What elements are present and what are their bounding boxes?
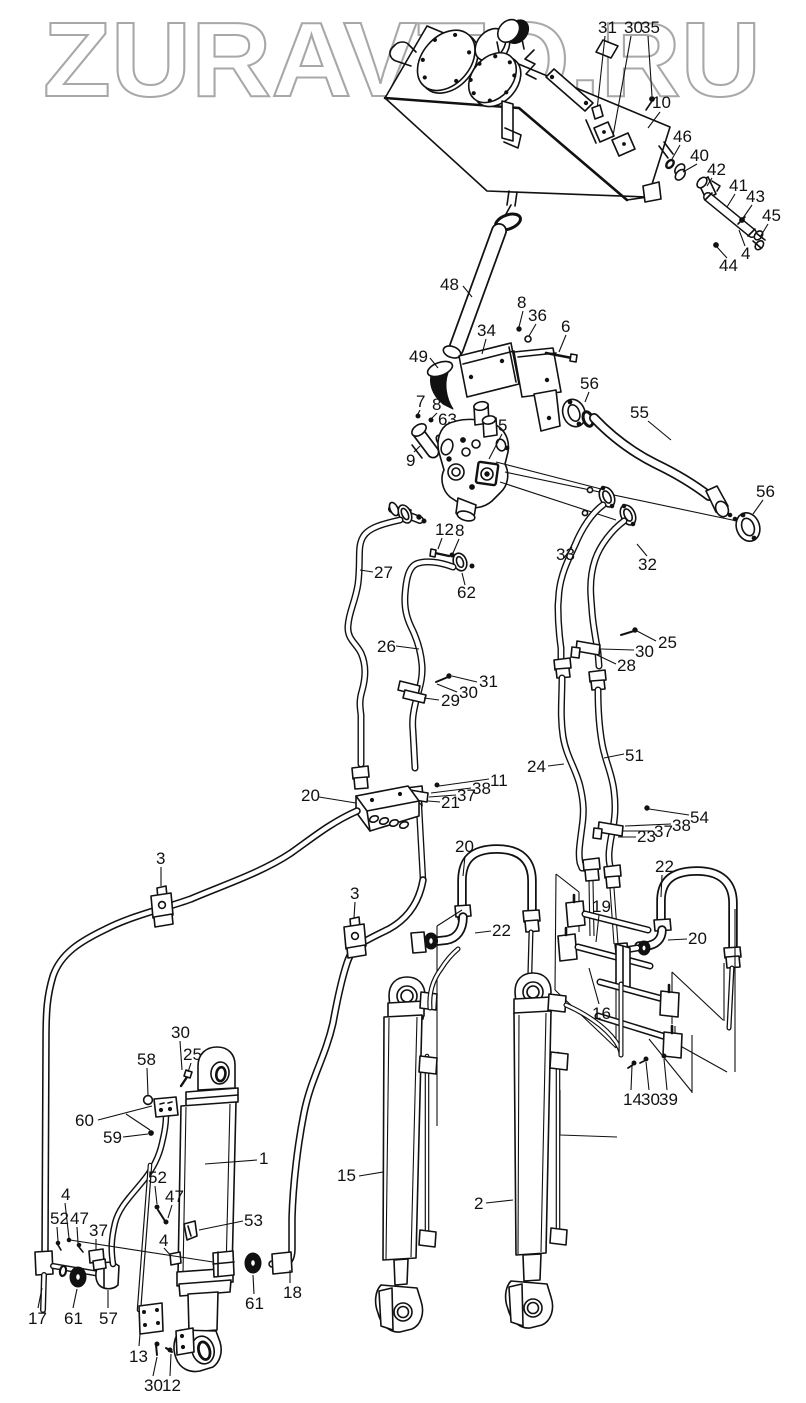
- svg-text:29: 29: [441, 691, 460, 710]
- svg-text:47: 47: [165, 1187, 184, 1206]
- svg-text:44: 44: [719, 256, 738, 275]
- svg-text:55: 55: [630, 403, 649, 422]
- svg-text:31: 31: [598, 18, 617, 37]
- svg-text:24: 24: [527, 757, 546, 776]
- svg-text:8: 8: [517, 293, 526, 312]
- svg-text:58: 58: [137, 1050, 156, 1069]
- svg-text:9: 9: [406, 451, 415, 470]
- svg-text:12: 12: [435, 520, 454, 539]
- svg-text:20: 20: [301, 786, 320, 805]
- svg-text:22: 22: [655, 857, 674, 876]
- svg-text:8: 8: [455, 521, 464, 540]
- svg-text:30: 30: [635, 642, 654, 661]
- svg-text:4: 4: [741, 244, 750, 263]
- svg-text:23: 23: [637, 827, 656, 846]
- svg-text:52: 52: [50, 1209, 69, 1228]
- svg-text:35: 35: [641, 18, 660, 37]
- svg-text:59: 59: [103, 1128, 122, 1147]
- svg-text:17: 17: [28, 1309, 47, 1328]
- svg-text:27: 27: [374, 563, 393, 582]
- svg-text:30: 30: [641, 1090, 660, 1109]
- svg-text:36: 36: [528, 306, 547, 325]
- svg-text:14: 14: [623, 1090, 642, 1109]
- svg-text:52: 52: [148, 1168, 167, 1187]
- svg-text:22: 22: [492, 921, 511, 940]
- svg-text:61: 61: [245, 1294, 264, 1313]
- svg-text:37: 37: [654, 822, 673, 841]
- svg-text:39: 39: [659, 1090, 678, 1109]
- svg-text:1: 1: [259, 1149, 268, 1168]
- svg-text:30: 30: [459, 683, 478, 702]
- svg-text:37: 37: [89, 1221, 108, 1240]
- svg-text:11: 11: [490, 771, 508, 790]
- svg-text:18: 18: [283, 1283, 302, 1302]
- svg-text:31: 31: [479, 672, 498, 691]
- svg-text:48: 48: [440, 275, 459, 294]
- svg-text:56: 56: [580, 374, 599, 393]
- svg-text:42: 42: [707, 160, 726, 179]
- svg-text:49: 49: [409, 347, 428, 366]
- svg-text:33: 33: [556, 545, 575, 564]
- svg-text:32: 32: [638, 555, 657, 574]
- svg-text:21: 21: [441, 793, 460, 812]
- svg-text:43: 43: [746, 187, 765, 206]
- svg-text:6: 6: [561, 317, 570, 336]
- svg-text:20: 20: [688, 929, 707, 948]
- svg-text:30: 30: [144, 1376, 163, 1395]
- svg-text:53: 53: [244, 1211, 263, 1230]
- svg-text:28: 28: [617, 656, 636, 675]
- svg-text:15: 15: [337, 1166, 356, 1185]
- svg-text:60: 60: [75, 1111, 94, 1130]
- svg-text:4: 4: [61, 1185, 70, 1204]
- svg-text:25: 25: [658, 633, 677, 652]
- svg-text:20: 20: [455, 837, 474, 856]
- svg-text:3: 3: [350, 884, 359, 903]
- svg-text:38: 38: [672, 816, 691, 835]
- svg-text:19: 19: [592, 897, 611, 916]
- svg-text:46: 46: [673, 127, 692, 146]
- svg-text:61: 61: [64, 1309, 83, 1328]
- svg-text:3: 3: [156, 849, 165, 868]
- svg-text:10: 10: [652, 93, 671, 112]
- svg-text:34: 34: [477, 321, 496, 340]
- svg-text:2: 2: [474, 1194, 483, 1213]
- svg-text:12: 12: [162, 1376, 181, 1395]
- svg-text:4: 4: [159, 1231, 168, 1250]
- svg-text:7: 7: [416, 392, 425, 411]
- svg-text:47: 47: [70, 1209, 89, 1228]
- svg-text:45: 45: [762, 206, 781, 225]
- svg-text:62: 62: [457, 583, 476, 602]
- svg-text:30: 30: [171, 1023, 190, 1042]
- svg-text:56: 56: [756, 482, 775, 501]
- svg-text:51: 51: [625, 746, 644, 765]
- svg-text:54: 54: [690, 808, 709, 827]
- svg-text:13: 13: [129, 1347, 148, 1366]
- svg-text:57: 57: [99, 1309, 118, 1328]
- svg-text:26: 26: [377, 637, 396, 656]
- svg-text:5: 5: [498, 416, 507, 435]
